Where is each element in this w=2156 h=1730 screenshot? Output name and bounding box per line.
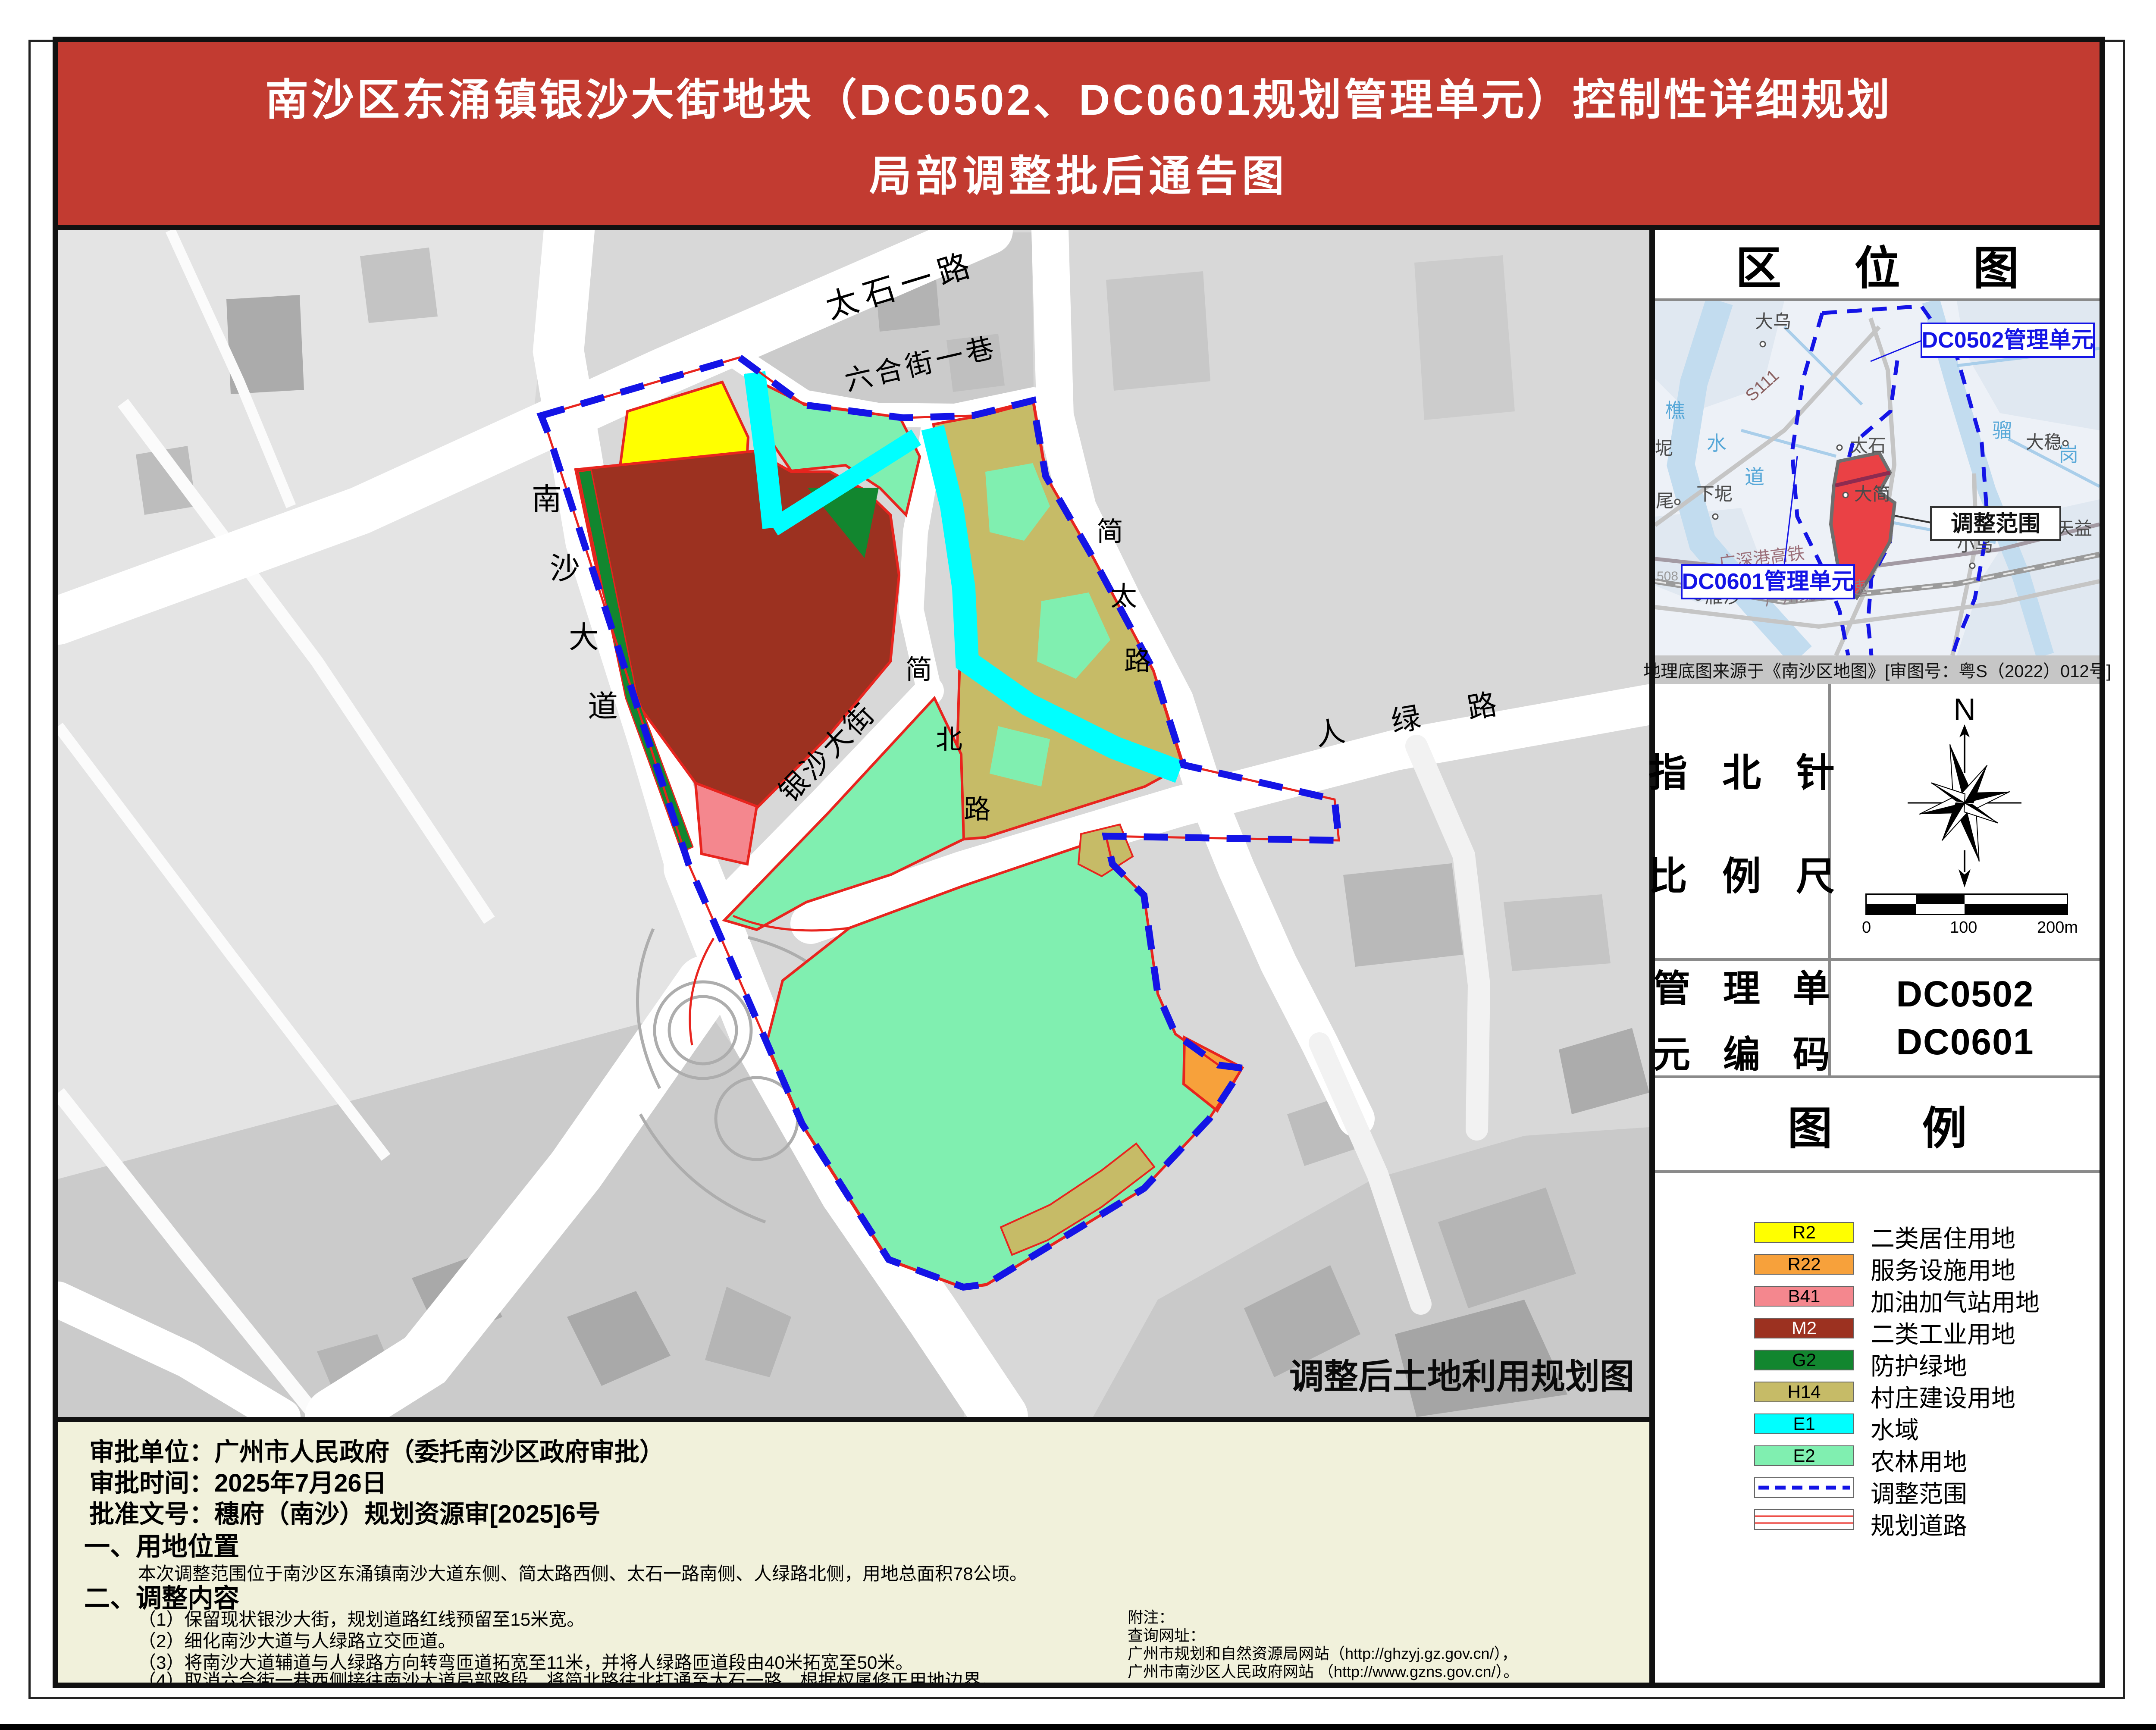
scale-tick-0: 0 [1862, 918, 1871, 937]
legend-item-r22: R22 服务设施用地 [1655, 1254, 2100, 1275]
legend-swatch-r22: R22 [1754, 1254, 1854, 1275]
location-map-title: 区 位 图 [1655, 230, 2100, 298]
legend-label: 加油加气站用地 [1871, 1283, 2040, 1318]
north-arrow-icon: N [1835, 686, 2094, 889]
legend-swatch-r2: R2 [1754, 1222, 1854, 1243]
unit-label-2: 元 编 码 [1642, 1024, 1841, 1078]
place-dajian: 大简 [1854, 484, 1890, 504]
legend-item-e2: E2 农林用地 [1655, 1445, 2100, 1466]
sidebar: 区 位 图 [1649, 230, 2100, 1683]
legend-label: 农林用地 [1871, 1443, 1967, 1478]
label-nansha-3: 大 [569, 621, 599, 654]
place-tianyi: 天益 [2056, 518, 2092, 539]
legend-swatch-h14: H14 [1754, 1382, 1854, 1402]
label-nansha-4: 道 [588, 689, 618, 723]
water-char-shui: 水 [1707, 432, 1727, 454]
water-char-gang: 岗 [2059, 443, 2078, 466]
callout-dc0601: DC0601管理单元 [1682, 569, 1854, 594]
legend-item-h14: H14 村庄建设用地 [1655, 1382, 2100, 1402]
label-508: 508 [1657, 569, 1678, 583]
unit-code-labels: 管 理 单 元 编 码 [1655, 961, 1831, 1075]
legend-swatch-g2: G2 [1754, 1350, 1854, 1370]
adjust-item-4: （4）取消六合街一巷西侧接往南沙大道局部路段，将简北路往北打通至太石一路，根据权… [138, 1666, 999, 1683]
label-nansha-1: 南 [532, 483, 562, 516]
compass-scale-labels: 指 北 针 比 例 尺 [1655, 684, 1831, 958]
title-banner: 南沙区东涌镇银沙大街地块（DC0502、DC0601规划管理单元）控制性详细规划… [58, 42, 2100, 230]
legend-label: 村庄建设用地 [1871, 1379, 2015, 1414]
label-jiantai-1: 简 [1097, 517, 1123, 547]
water-char-dao: 道 [1745, 466, 1764, 488]
label-jianbei-3: 路 [964, 795, 990, 824]
content-frame: 南沙区东涌镇银沙大街地块（DC0502、DC0601规划管理单元）控制性详细规划… [53, 37, 2105, 1688]
place-taishi: 太石 [1850, 436, 1886, 456]
approval-doc: 批准文号：穗府（南沙）规划资源审[2025]6号 [89, 1494, 601, 1530]
unit-code-dc0502: DC0502 [1896, 973, 2034, 1015]
note-url-2: 广州市南沙区人民政府网站 （http://www.gzns.gov.cn/）。 [1128, 1661, 1519, 1683]
scale-bar: 0 100 200m [1865, 893, 2068, 937]
legend-label: 二类居住用地 [1871, 1219, 2015, 1254]
sheet-bottom-edge [0, 1724, 2156, 1730]
place-dawen: 大稳 [2026, 432, 2062, 452]
compass-scale-graphics: N [1831, 684, 2100, 958]
place-xiani: 下坭 [1696, 484, 1733, 504]
label-nansha-2: 沙 [550, 552, 580, 585]
legend-swatch-e2: E2 [1754, 1445, 1854, 1466]
place-wei: 尾 [1656, 491, 1674, 511]
legend-swatch-b41: B41 [1754, 1286, 1854, 1307]
location-map-canvas: 大乌 太石 大稳 下坭 大简 天益 小乌 雁沙 [1655, 301, 2100, 655]
unit-code-dc0601: DC0601 [1896, 1021, 2034, 1063]
legend-title: 图 例 [1655, 1078, 2100, 1170]
unit-codes: DC0502 DC0601 [1831, 961, 2100, 1075]
map-caption: 调整后土地利用规划图 [1289, 1357, 1634, 1396]
legend-item-e1: E1 水域 [1655, 1413, 2100, 1434]
legend-label: 二类工业用地 [1871, 1315, 2015, 1350]
water-char-qiao: 樵 [1665, 399, 1685, 422]
legend-label: 规划道路 [1871, 1507, 1967, 1542]
legend-item-road: 规划道路 [1655, 1509, 2100, 1530]
approval-panel: 审批单位：广州市人民政府（委托南沙区政府审批） 审批时间：2025年7月26日 … [58, 1422, 1649, 1683]
legend-item-g2: G2 防护绿地 [1655, 1350, 2100, 1370]
legend-label: 服务设施用地 [1871, 1251, 2015, 1286]
legend-swatch-e1: E1 [1754, 1413, 1854, 1434]
legend-item-scope: 调整范围 [1655, 1477, 2100, 1498]
legend-item-r2: R2 二类居住用地 [1655, 1222, 2100, 1243]
legend-label: 调整范围 [1871, 1475, 1967, 1510]
place-dawu: 大乌 [1755, 311, 1791, 332]
location-map: 大乌 太石 大稳 下坭 大简 天益 小乌 雁沙 [1655, 301, 2100, 655]
legend-item-m2: M2 二类工业用地 [1655, 1318, 2100, 1338]
map-footer-divider [58, 1417, 1649, 1422]
scale-tick-100: 100 [1950, 918, 1977, 937]
unit-code-section: 管 理 单 元 编 码 DC0502 DC0601 [1655, 961, 2100, 1075]
scale-tick-200: 200m [2037, 918, 2078, 937]
section1-body: 本次调整范围位于南沙区东涌镇南沙大道东侧、简太路西侧、太石一路南侧、人绿路北侧，… [138, 1559, 1028, 1586]
callout-scope: 调整范围 [1951, 511, 2040, 536]
legend-item-b41: B41 加油加气站用地 [1655, 1286, 2100, 1307]
legend-swatch-road [1754, 1509, 1854, 1530]
label-jiantai-3: 路 [1124, 646, 1151, 676]
legend: R2 二类居住用地 R22 服务设施用地 B41 加油加气站用地 M2 二类工业… [1655, 1173, 2100, 1683]
legend-label: 水域 [1871, 1411, 1919, 1446]
planning-map: 太石一路 六合街一巷 南 沙 大 道 简 太 路 简 北 路 银沙大街 人 绿 … [58, 230, 1649, 1417]
scale-label: 比 例 尺 [1636, 845, 1847, 901]
callout-dc0502: DC0502管理单元 [1922, 328, 2094, 353]
water-char-liu: 骝 [1992, 419, 2012, 442]
label-jianbei-1: 简 [906, 655, 932, 685]
page-title-line2: 局部调整批后通告图 [869, 142, 1288, 203]
planning-map-canvas: 太石一路 六合街一巷 南 沙 大 道 简 太 路 简 北 路 银沙大街 人 绿 … [58, 230, 1649, 1417]
announcement-sheet: 南沙区东涌镇银沙大街地块（DC0502、DC0601规划管理单元）控制性详细规划… [0, 0, 2156, 1730]
unit-label-1: 管 理 单 [1642, 958, 1841, 1012]
location-map-source: 地理底图来源于《南沙区地图》[审图号：粤S（2022）012号] [1655, 655, 2100, 684]
compass-scale-section: 指 北 针 比 例 尺 N [1655, 684, 2100, 958]
label-jianbei-2: 北 [936, 725, 962, 755]
place-ni: 坭 [1655, 438, 1673, 458]
compass-label: 指 北 针 [1636, 741, 1847, 797]
page-title-line1: 南沙区东涌镇银沙大街地块（DC0502、DC0601规划管理单元）控制性详细规划 [265, 65, 1893, 127]
legend-swatch-scope [1754, 1477, 1854, 1498]
north-letter: N [1953, 693, 1976, 727]
section1-title: 一、用地位置 [84, 1526, 239, 1563]
legend-swatch-m2: M2 [1754, 1318, 1854, 1338]
label-jiantai-2: 太 [1110, 582, 1137, 611]
legend-label: 防护绿地 [1871, 1347, 1967, 1382]
